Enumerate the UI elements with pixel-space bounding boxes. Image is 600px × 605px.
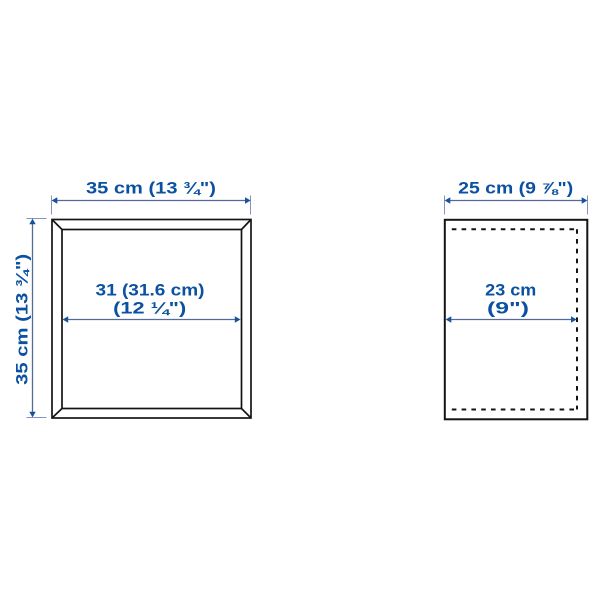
svg-text:35 cm (13 ¾"): 35 cm (13 ¾") (86, 178, 216, 197)
svg-text:(9"): (9") (487, 298, 529, 317)
svg-text:23 cm: 23 cm (485, 280, 536, 299)
svg-text:35 cm (13 ¾"): 35 cm (13 ¾") (13, 254, 32, 385)
svg-text:25 cm (9 ⅞"): 25 cm (9 ⅞") (458, 178, 573, 197)
svg-text:31 (31.6 cm): 31 (31.6 cm) (96, 280, 205, 299)
svg-text:(12 ¼"): (12 ¼") (113, 298, 186, 317)
